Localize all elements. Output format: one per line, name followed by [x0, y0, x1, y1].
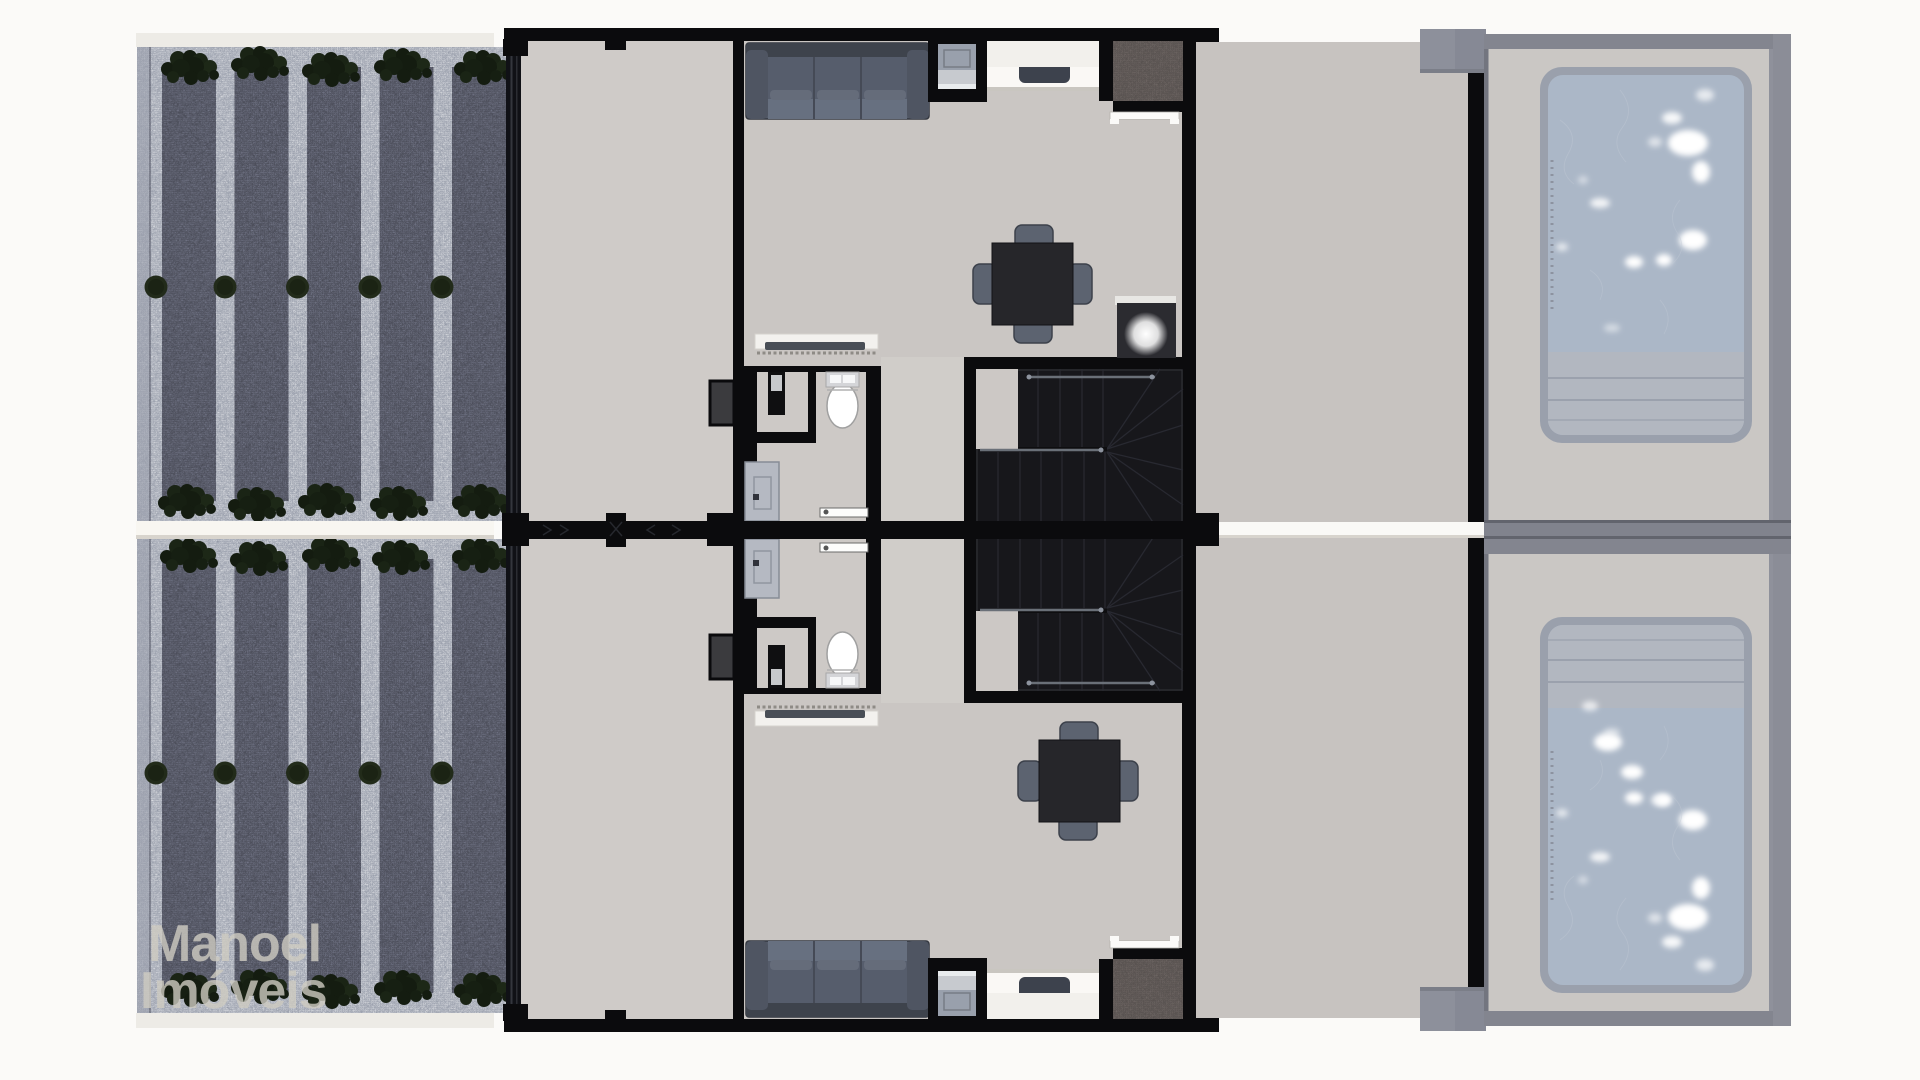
svg-text:Imóveis: Imóveis — [140, 962, 327, 1020]
